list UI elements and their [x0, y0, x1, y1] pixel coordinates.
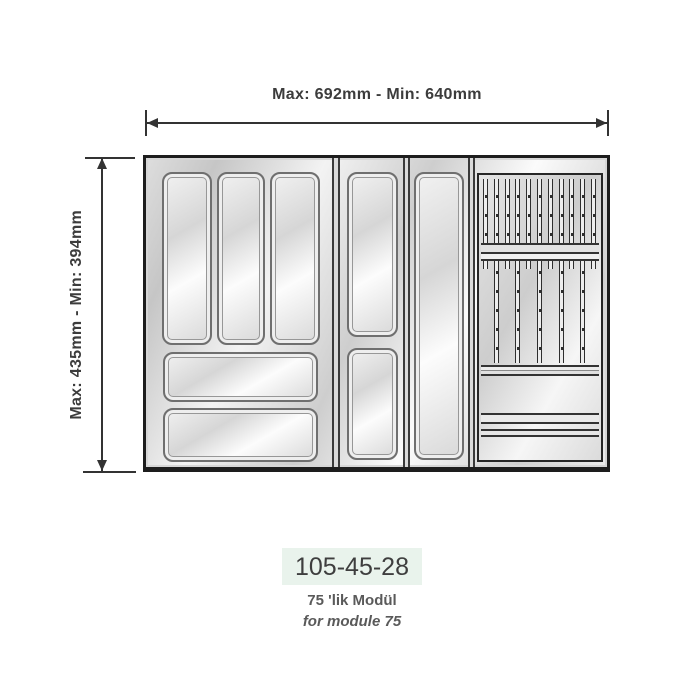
depth-dimension-line — [101, 158, 103, 471]
cutlery-slot-vertical — [162, 172, 212, 345]
width-dimension-label: Max: 692mm - Min: 640mm — [147, 86, 607, 104]
knife-block-rail — [481, 365, 599, 377]
arrow-right-icon — [596, 118, 607, 128]
depth-dimension-label: Max: 435mm - Min: 394mm — [68, 210, 86, 420]
cutlery-slot-wide — [163, 352, 318, 402]
knife-block — [477, 173, 603, 462]
arrow-up-icon — [97, 158, 107, 169]
cutlery-tray-diagram — [143, 155, 610, 472]
module-caption-turkish: 75 'lik Modül — [182, 592, 522, 609]
dimension-end-tick — [607, 110, 609, 136]
knife-slat — [580, 179, 585, 363]
knife-slat — [515, 179, 520, 363]
cutlery-slot-vertical — [414, 172, 464, 460]
cutlery-slot-wide — [163, 408, 318, 462]
cutlery-slot-vertical — [347, 172, 398, 337]
arrow-left-icon — [147, 118, 158, 128]
cutlery-slot-vertical — [270, 172, 320, 345]
knife-block-rail — [481, 429, 599, 437]
knife-slat — [559, 179, 564, 363]
module-divider — [403, 158, 410, 467]
width-dimension-line — [147, 122, 607, 124]
arrow-down-icon — [97, 460, 107, 471]
cutlery-slot-vertical — [217, 172, 265, 345]
knife-block-rail — [481, 243, 599, 263]
dimension-end-tick — [85, 157, 135, 159]
module-divider — [468, 158, 475, 467]
depth-dimension-label-wrap: Max: 435mm - Min: 394mm — [62, 158, 92, 471]
product-code-badge: 105-45-28 — [282, 548, 422, 585]
knife-slat — [494, 179, 499, 363]
cutlery-slot-vertical — [347, 348, 398, 460]
knife-slat — [537, 179, 542, 363]
dimension-end-tick — [83, 471, 136, 473]
module-caption-english: for module 75 — [182, 613, 522, 630]
knife-block-rail — [481, 413, 599, 425]
product-spec-sheet: Max: 692mm - Min: 640mm Max: 435mm - Min… — [0, 0, 700, 700]
module-divider — [332, 158, 340, 467]
